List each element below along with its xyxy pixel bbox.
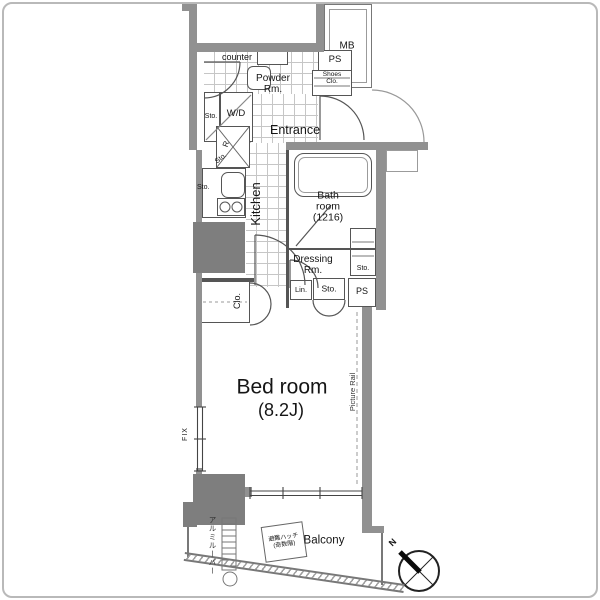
bedroom-label: Bed room <box>236 375 327 398</box>
compass-needle <box>400 552 420 572</box>
fix-window <box>194 407 206 471</box>
aluminum-louver-label: アルミルーバー <box>207 516 218 576</box>
washer-dryer-label: W/D <box>227 109 245 119</box>
evacuation-hatch: 避難ハッチ (奇数階) <box>261 521 308 562</box>
evacuation-hatch-label-2: (奇数階) <box>273 540 296 550</box>
exterior-corridor-arc <box>372 90 424 142</box>
pipe-space-top-label: PS <box>329 55 342 65</box>
storage-label-d: Sto. <box>357 265 369 273</box>
counter-label: counter <box>222 53 252 63</box>
fix-window-label: FIX <box>182 427 190 441</box>
storage-label-e: Sto. <box>321 284 336 293</box>
storage-door-arc-1 <box>313 300 329 316</box>
powder-room-label: Powder Rm. <box>256 73 290 95</box>
entrance-label: Entrance <box>270 124 320 138</box>
closet-door-arc-2 <box>250 304 271 325</box>
stove-burners <box>220 202 242 212</box>
storage-label-a: Sto. <box>205 113 217 121</box>
picture-rail-label: Picture Rail <box>349 373 357 411</box>
linework-layer <box>0 0 600 600</box>
meter-box-label: MB <box>340 41 355 52</box>
bathroom-label: Bath room (1216) <box>313 190 343 223</box>
pipe-space-bottom-label: PS <box>356 287 368 297</box>
storage-door-arc-2 <box>329 300 345 316</box>
balcony-window <box>250 487 362 499</box>
closet-door-arc-1 <box>250 283 271 304</box>
entrance-door-arc <box>320 96 364 140</box>
storage-label-c: Sto. <box>197 184 209 192</box>
powder-door-arc <box>204 62 240 98</box>
bedroom-size-label: (8.2J) <box>258 401 304 421</box>
drain-circle <box>223 572 237 586</box>
shoes-closet-label: Shoes Clo. <box>323 71 341 85</box>
compass <box>399 551 439 591</box>
aluminum-louver-symbol <box>222 518 237 586</box>
cabinet-shelf-lines <box>314 78 374 256</box>
kitchen-label: Kitchen <box>249 182 263 225</box>
dressing-room-label: Dressing Rm. <box>293 254 332 276</box>
floor-plan-canvas: 避難ハッチ (奇数階) counter PS Shoes Clo. MB Pow… <box>0 0 600 600</box>
linen-label: Lin. <box>295 286 307 294</box>
closet-label: Clo. <box>233 293 243 309</box>
balcony-label: Balcony <box>304 535 345 548</box>
